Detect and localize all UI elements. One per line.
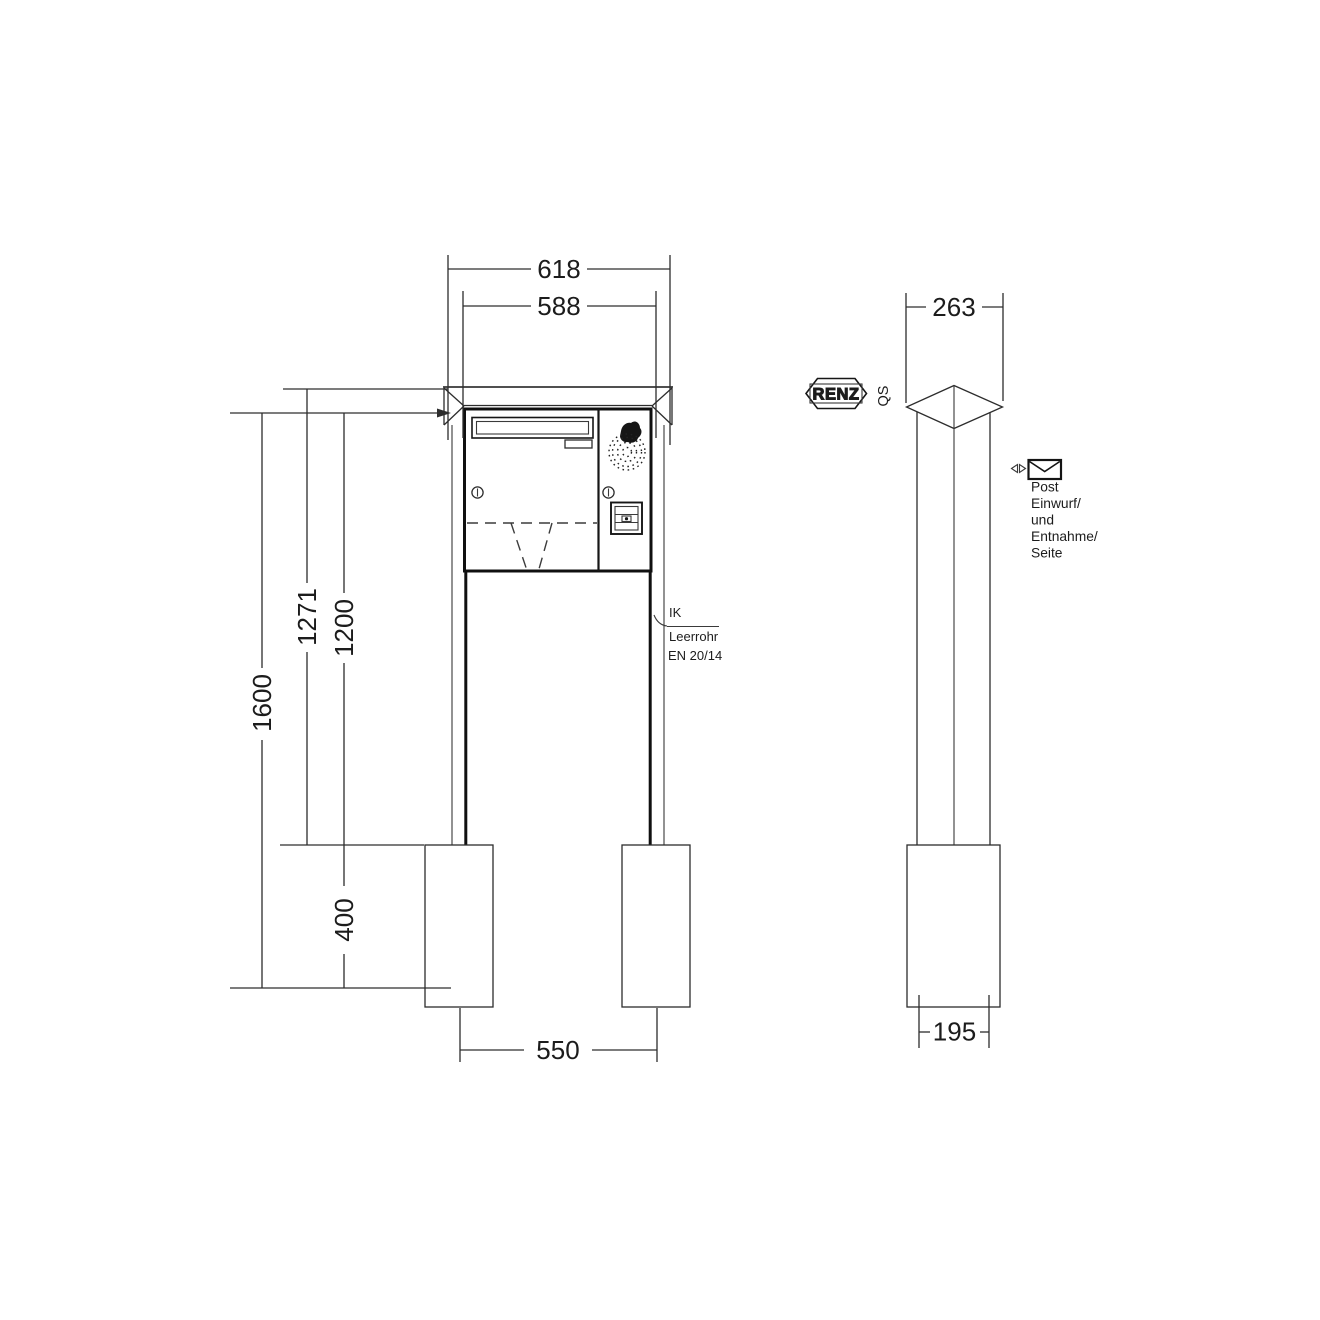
conduit-note-line1: IK	[669, 605, 682, 620]
lock-cylinder-icon	[603, 487, 614, 498]
dim-post-spacing: 550	[460, 1008, 657, 1065]
qs-mark: QS	[876, 386, 892, 407]
dim-side-foundation-width: 195	[919, 995, 989, 1048]
dim-height-with-cap: 1271	[292, 389, 322, 845]
brand-logo: RENZ	[806, 379, 867, 409]
mailbox-technical-drawing: 618 588 1600 1271	[0, 0, 1320, 1320]
dim-foundation-depth: 400	[329, 845, 359, 988]
side-foundation-block	[907, 845, 1000, 1007]
dim-body-width-value: 588	[537, 291, 580, 321]
dim-body-width: 588	[463, 291, 656, 438]
dim-height-body-top: 1200	[329, 413, 359, 845]
dim-depth-value: 263	[932, 292, 975, 322]
foundation-right	[622, 845, 690, 1007]
leader-line	[654, 615, 667, 626]
dim-total-height-value: 1600	[247, 674, 277, 732]
note-line-2: Einwurf/	[1031, 496, 1081, 511]
dim-cap-width-value: 618	[537, 254, 580, 284]
bell-button-icon	[611, 503, 642, 535]
internal-chute-dashed	[467, 523, 597, 569]
post-access-note: Post Einwurf/ und Entnahme/ Seite	[1012, 460, 1098, 561]
note-line-1: Post	[1031, 480, 1059, 495]
note-line-4: Entnahme/	[1031, 529, 1098, 544]
technical-drawing-page: 618 588 1600 1271	[0, 0, 1320, 1320]
dim-cap-width: 618	[448, 254, 670, 445]
envelope-icon	[1029, 460, 1062, 479]
conduit-note-line3: EN 20/14	[668, 648, 722, 663]
dim-height-with-cap-value: 1271	[292, 588, 322, 646]
brand-logo-text: RENZ	[813, 386, 860, 404]
front-posts	[452, 425, 664, 845]
dim-post-spacing-value: 550	[536, 1035, 579, 1065]
dim-side-foundation-width-value: 195	[933, 1017, 976, 1047]
side-view: RENZ QS 263 195	[806, 292, 1098, 1048]
note-line-5: Seite	[1031, 546, 1063, 561]
front-cap	[443, 387, 673, 425]
conduit-note-line2: Leerrohr	[669, 629, 719, 644]
mail-slot	[472, 418, 593, 439]
lock-cylinder-icon	[472, 487, 483, 498]
side-cap	[907, 386, 1003, 429]
dim-height-body-top-value: 1200	[329, 599, 359, 657]
side-post	[917, 412, 990, 845]
note-line-3: und	[1031, 513, 1054, 528]
dim-foundation-depth-value: 400	[329, 898, 359, 941]
front-mailbox-body	[465, 409, 652, 571]
front-view: 618 588 1600 1271	[230, 254, 722, 1065]
foundation-left	[425, 845, 493, 1007]
microphone-icon	[620, 422, 641, 443]
front-foundation-blocks	[425, 845, 690, 1007]
dim-total-height: 1600	[247, 413, 277, 988]
name-plate	[565, 440, 592, 448]
direction-arrows-icon	[1012, 465, 1026, 473]
